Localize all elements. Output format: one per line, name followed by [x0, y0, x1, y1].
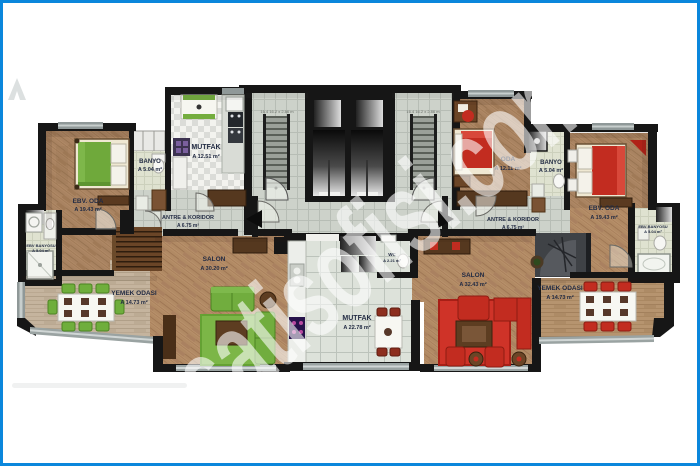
- svg-text:YEMEK ODASI: YEMEK ODASI: [537, 285, 583, 292]
- svg-text:A 14.73 m²: A 14.73 m²: [120, 299, 147, 306]
- svg-text:ANTRE & KORIDOR: ANTRE & KORIDOR: [162, 215, 214, 221]
- svg-text:EBV. ODA: EBV. ODA: [589, 205, 620, 212]
- svg-text:BANYO: BANYO: [139, 159, 161, 165]
- svg-text:EBV. ODA: EBV. ODA: [73, 198, 104, 205]
- svg-text:A 6.75 m²: A 6.75 m²: [502, 225, 524, 231]
- svg-text:SALON: SALON: [203, 256, 226, 263]
- svg-text:A 6.75 m²: A 6.75 m²: [177, 223, 199, 229]
- svg-text:SALON: SALON: [462, 272, 485, 279]
- svg-text:YEMEK ODASI: YEMEK ODASI: [111, 290, 157, 297]
- svg-text:A 32.43 m²: A 32.43 m²: [459, 281, 486, 288]
- svg-text:A 5.04 m²: A 5.04 m²: [644, 229, 662, 234]
- svg-text:A 19.43 m²: A 19.43 m²: [74, 206, 101, 213]
- svg-text:A 19.43 m²: A 19.43 m²: [590, 214, 617, 221]
- svg-text:A 30.20 m²: A 30.20 m²: [200, 265, 227, 272]
- svg-text:16.4 16.2 x 2.86 m: 16.4 16.2 x 2.86 m: [260, 109, 294, 114]
- svg-text:MUTFAK: MUTFAK: [191, 144, 220, 151]
- svg-text:A 14.73 m²: A 14.73 m²: [546, 294, 573, 301]
- svg-text:A 12.51 m²: A 12.51 m²: [192, 153, 219, 160]
- svg-text:A 5.04 m²: A 5.04 m²: [32, 248, 50, 253]
- svg-text:A 5.04 m²: A 5.04 m²: [138, 166, 162, 173]
